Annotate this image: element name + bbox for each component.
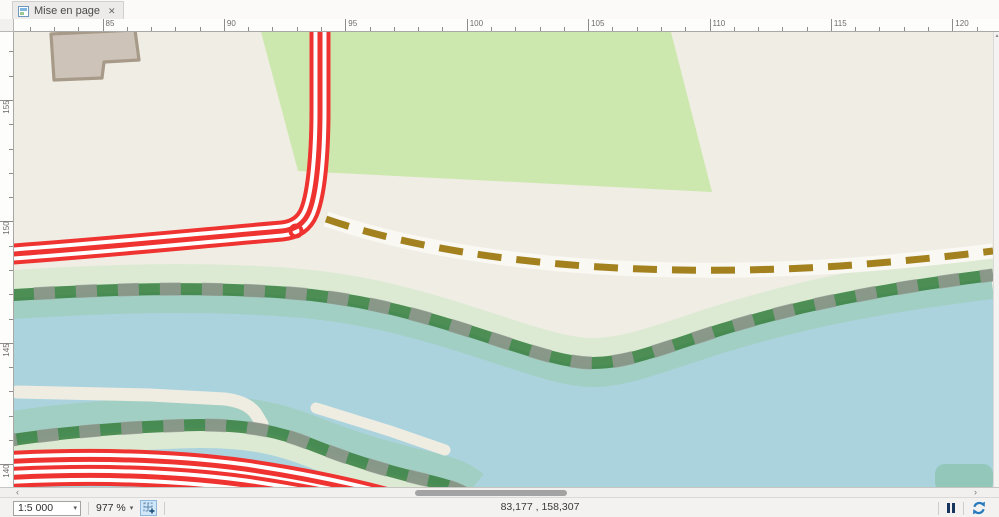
top-ruler-label: 90 bbox=[227, 20, 236, 28]
chevron-down-icon[interactable]: ▾ bbox=[130, 504, 134, 512]
left-ruler: 155150145140 bbox=[0, 32, 14, 487]
scroll-left-icon[interactable]: ‹ bbox=[16, 488, 19, 497]
layout-tab-bar: Mise en page ✕ bbox=[0, 0, 999, 20]
left-ruler-label: 145 bbox=[3, 343, 11, 357]
grid-plus-icon bbox=[143, 502, 155, 514]
horizontal-scrollbar[interactable]: ‹ › bbox=[0, 487, 999, 497]
app-window: Mise en page ✕ 859095100105110115120 155… bbox=[0, 0, 999, 517]
top-ruler: 859095100105110115120 bbox=[14, 19, 999, 32]
tab-title: Mise en page bbox=[34, 5, 100, 17]
cursor-coordinates: 83,177 , 158,307 bbox=[501, 501, 580, 513]
horizontal-scroll-thumb[interactable] bbox=[415, 490, 567, 496]
left-ruler-label: 140 bbox=[3, 464, 11, 478]
ruler-corner bbox=[0, 19, 14, 32]
top-ruler-label: 105 bbox=[591, 20, 604, 28]
top-ruler-label: 85 bbox=[106, 20, 115, 28]
zoom-value: 977 % bbox=[96, 502, 126, 514]
separator bbox=[963, 502, 964, 515]
top-ruler-label: 100 bbox=[470, 20, 483, 28]
refresh-icon bbox=[971, 500, 987, 516]
scale-combobox[interactable]: 1:5 000 ▾ bbox=[13, 501, 81, 516]
snap-grid-button[interactable] bbox=[140, 500, 157, 516]
pause-drawing-button[interactable] bbox=[946, 503, 957, 513]
separator bbox=[164, 502, 165, 515]
vertical-scrollbar[interactable]: ▲ bbox=[993, 32, 999, 487]
tab-mise-en-page[interactable]: Mise en page ✕ bbox=[12, 1, 124, 20]
left-ruler-label: 150 bbox=[3, 221, 11, 235]
refresh-button[interactable] bbox=[971, 500, 987, 516]
chevron-down-icon[interactable]: ▾ bbox=[73, 504, 77, 512]
scroll-up-icon[interactable]: ▲ bbox=[994, 33, 999, 39]
close-icon[interactable]: ✕ bbox=[108, 6, 116, 17]
status-bar: 1:5 000 ▾ 977 % ▾ 83,177 , 158,307 bbox=[0, 497, 999, 517]
separator bbox=[938, 502, 939, 515]
layout-map-canvas[interactable] bbox=[14, 32, 993, 487]
layout-page-icon bbox=[18, 6, 29, 17]
scroll-right-icon[interactable]: › bbox=[974, 488, 977, 497]
scale-value: 1:5 000 bbox=[18, 502, 53, 514]
zoom-percent-control[interactable]: 977 % ▾ bbox=[96, 502, 133, 514]
top-ruler-label: 95 bbox=[348, 20, 357, 28]
left-ruler-label: 155 bbox=[3, 100, 11, 114]
top-ruler-label: 110 bbox=[713, 20, 726, 28]
pause-icon bbox=[947, 503, 950, 513]
corner-teal-patch bbox=[935, 464, 993, 487]
separator bbox=[88, 502, 89, 515]
top-ruler-label: 120 bbox=[955, 20, 968, 28]
top-ruler-label: 115 bbox=[834, 20, 847, 28]
